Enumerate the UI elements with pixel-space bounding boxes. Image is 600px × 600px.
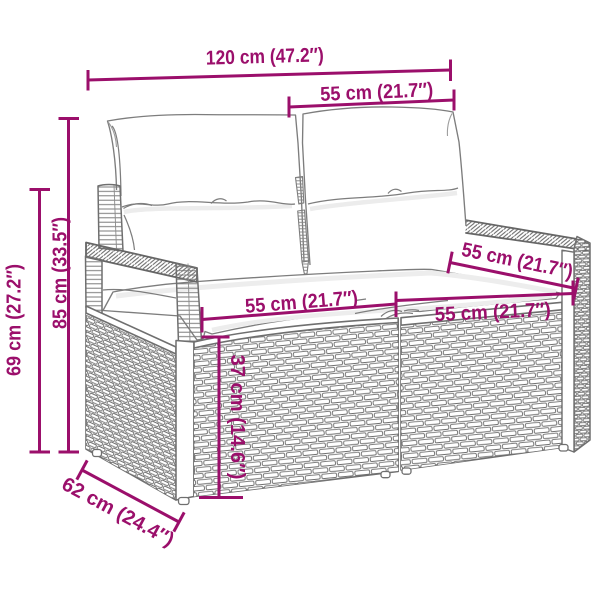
svg-text:69 cm (27.2″): 69 cm (27.2″) <box>4 264 26 376</box>
svg-text:85 cm (33.5″): 85 cm (33.5″) <box>50 217 72 329</box>
svg-text:120 cm (47.2″): 120 cm (47.2″) <box>206 44 325 69</box>
svg-text:37 cm (14.6″): 37 cm (14.6″) <box>226 355 248 480</box>
